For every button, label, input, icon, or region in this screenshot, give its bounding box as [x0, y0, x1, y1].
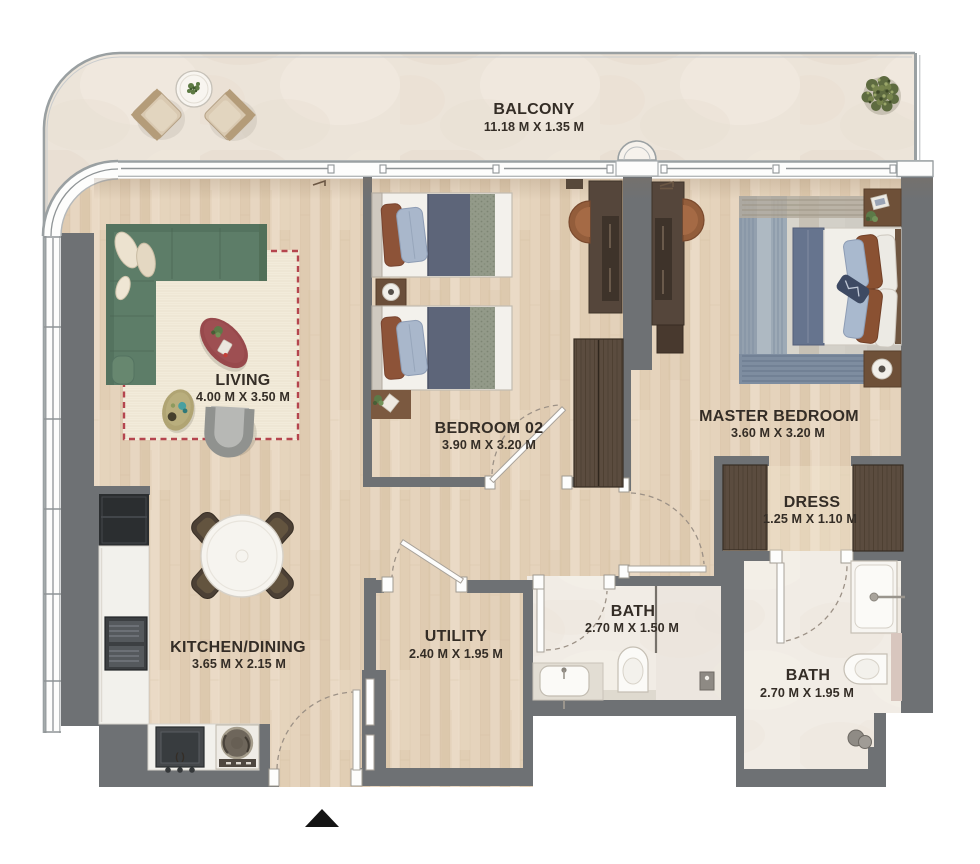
svg-text:4.00 M X 3.50 M: 4.00 M X 3.50 M [196, 390, 290, 404]
svg-text:LIVING: LIVING [215, 372, 270, 389]
svg-text:3.90 M X 3.20 M: 3.90 M X 3.20 M [442, 438, 536, 452]
svg-text:1.25 M X 1.10 M: 1.25 M X 1.10 M [763, 512, 857, 526]
svg-text:2.40 M X 1.95 M: 2.40 M X 1.95 M [409, 647, 503, 661]
svg-text:2.70 M X 1.95 M: 2.70 M X 1.95 M [760, 686, 854, 700]
svg-text:BATH: BATH [611, 603, 655, 620]
svg-text:2.70 M X 1.50 M: 2.70 M X 1.50 M [585, 621, 679, 635]
svg-text:BALCONY: BALCONY [493, 101, 574, 118]
svg-text:MASTER BEDROOM: MASTER BEDROOM [699, 408, 859, 425]
svg-text:3.65 M X 2.15 M: 3.65 M X 2.15 M [192, 657, 286, 671]
svg-text:DRESS: DRESS [784, 494, 841, 511]
svg-text:3.60 M X 3.20 M: 3.60 M X 3.20 M [731, 426, 825, 440]
svg-text:UTILITY: UTILITY [425, 628, 488, 645]
svg-text:11.18 M X 1.35 M: 11.18 M X 1.35 M [484, 120, 584, 134]
svg-text:KITCHEN/DINING: KITCHEN/DINING [170, 639, 306, 656]
svg-text:BEDROOM 02: BEDROOM 02 [435, 420, 544, 437]
svg-text:BATH: BATH [786, 667, 830, 684]
svg-text:( ): ( ) [175, 752, 184, 763]
